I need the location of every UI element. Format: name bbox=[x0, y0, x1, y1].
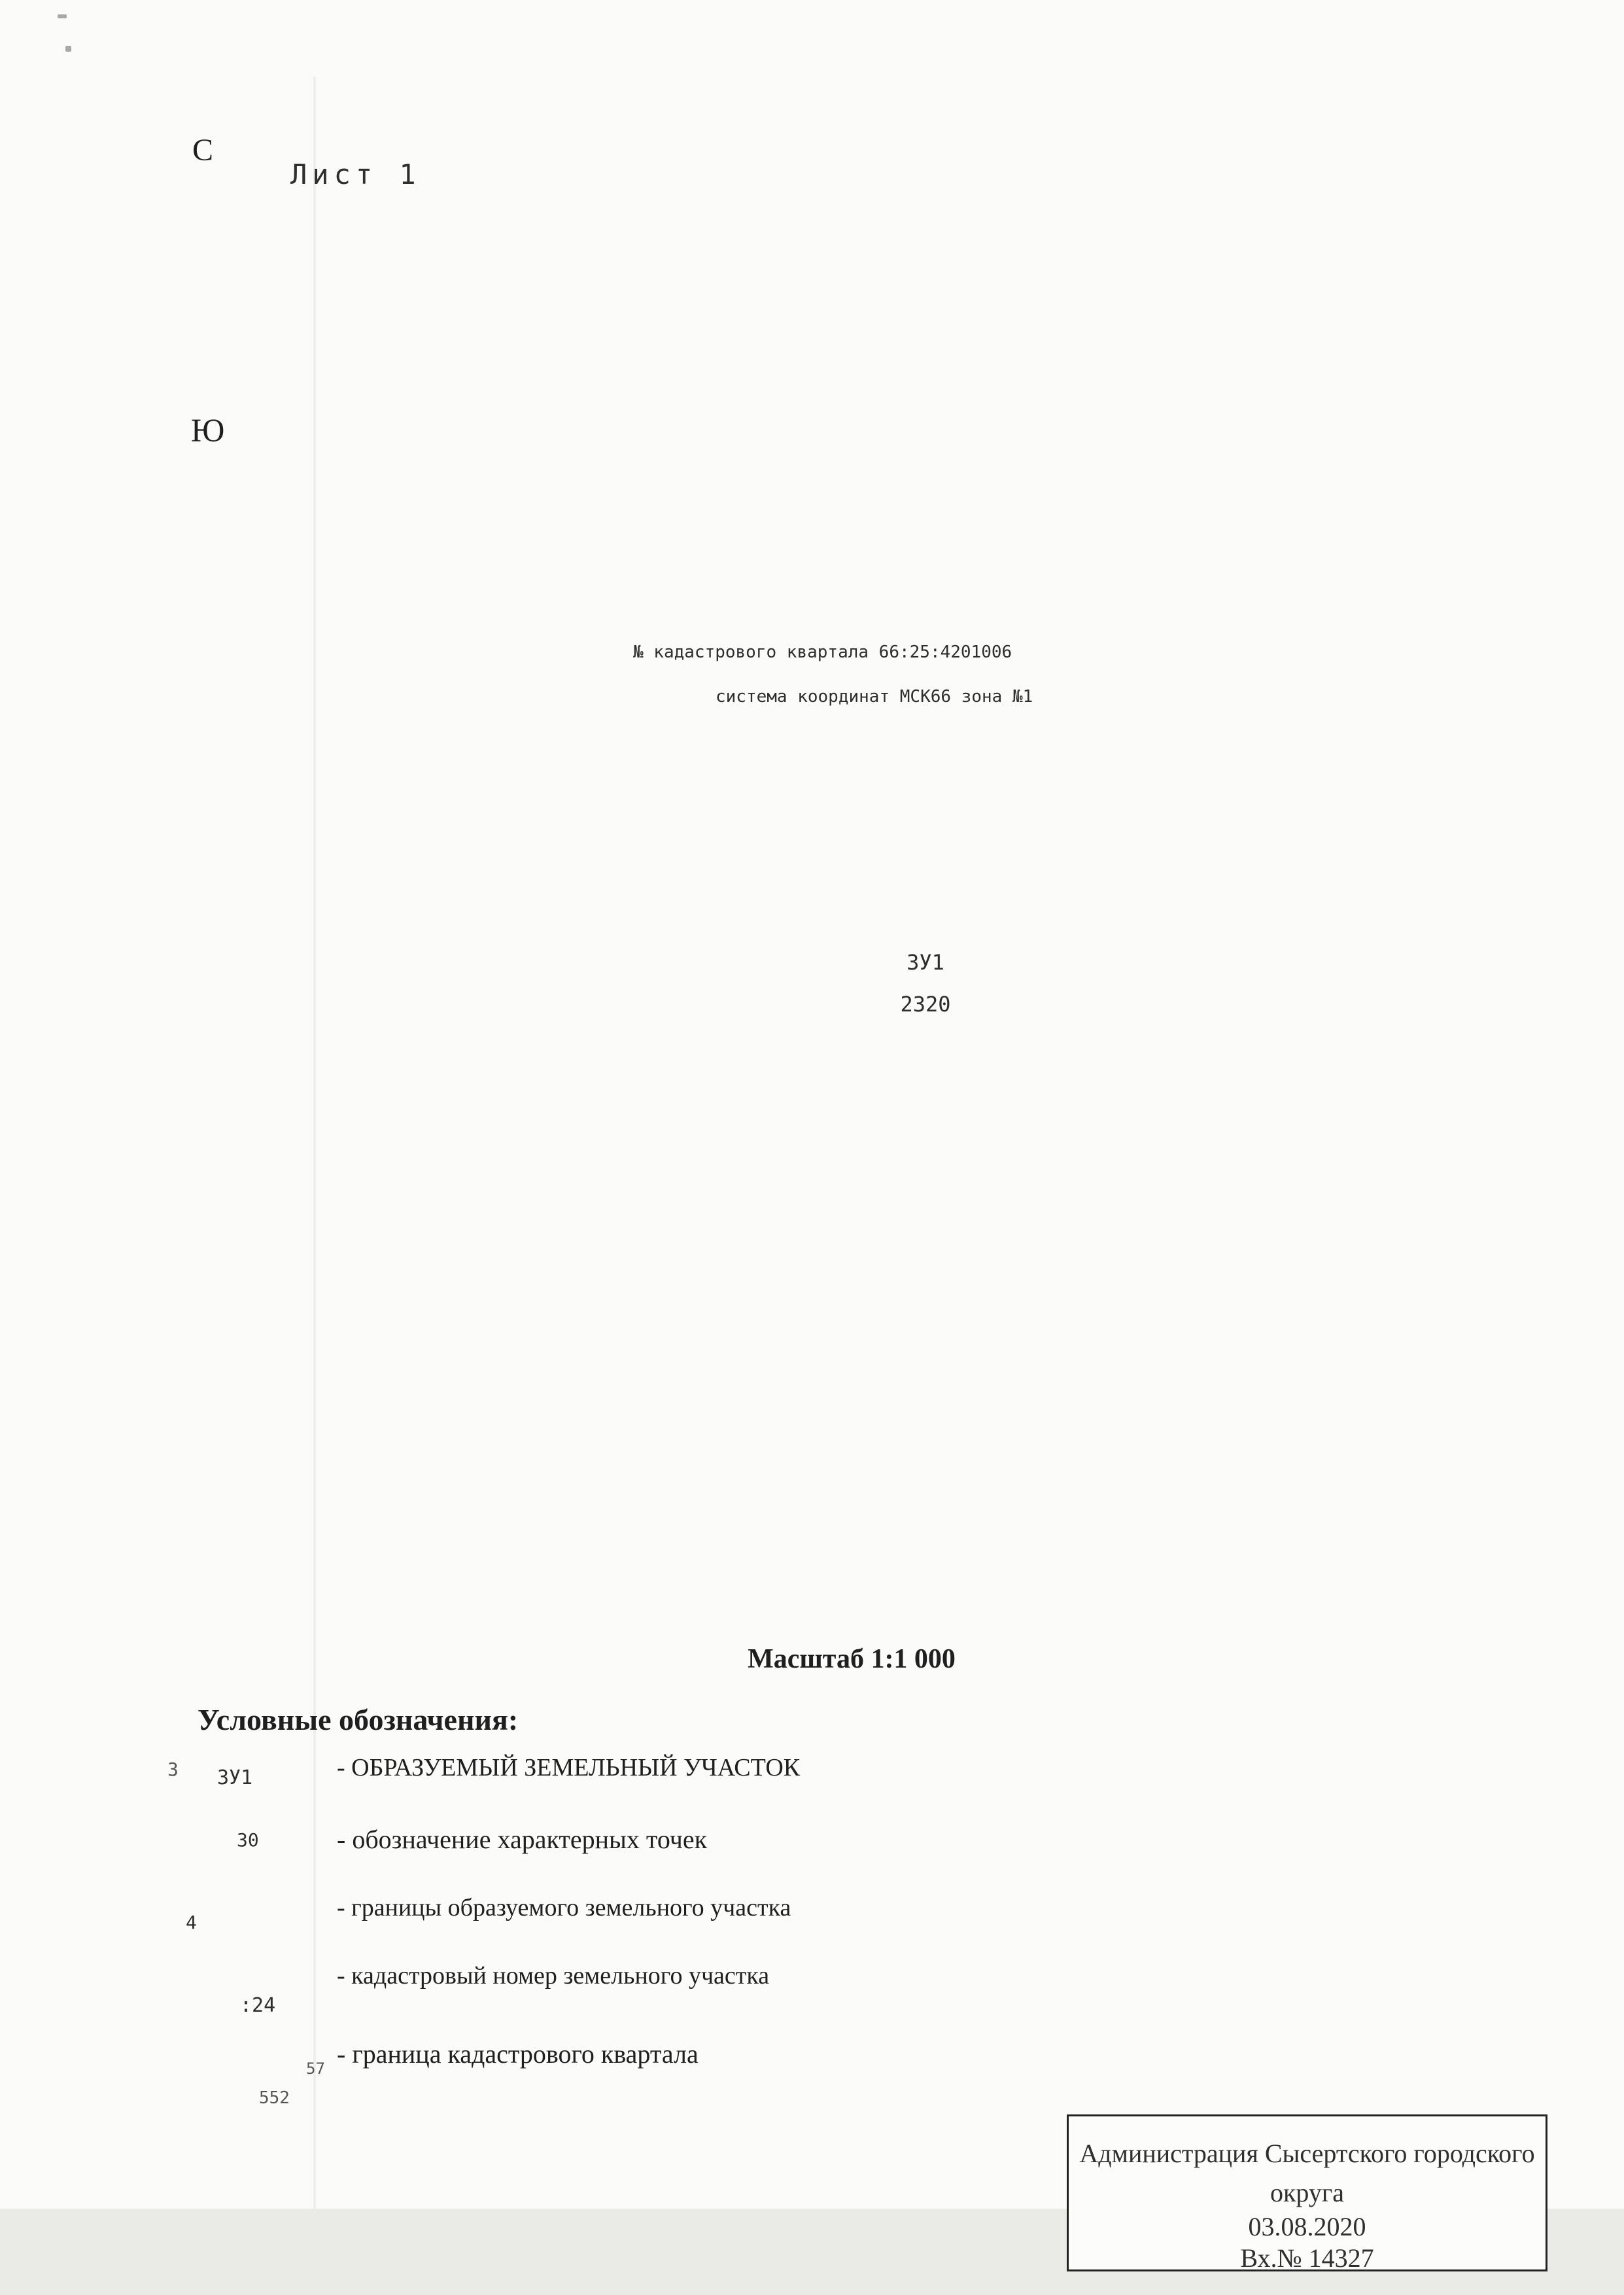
legend-parcel-symbol: ЗУ1 bbox=[217, 1766, 252, 1789]
parcel-area-value: 2320 bbox=[900, 992, 950, 1017]
sheet-title: Лист 1 bbox=[290, 158, 421, 190]
legend-item-char-points: - обозначение характерных точек bbox=[337, 1824, 707, 1855]
quarter-number-text: № кадастрового квартала 66:25:4201006 bbox=[633, 642, 1012, 662]
legend-cad-number-example: :24 bbox=[240, 1994, 275, 2017]
cadastral-map-canvas bbox=[0, 0, 1624, 2295]
legend-quarter-pt2: 552 bbox=[259, 2088, 290, 2108]
south-label: Ю bbox=[191, 411, 224, 449]
legend-item-parcel-borders: - границы образуемого земельного участка bbox=[337, 1893, 791, 1922]
legend-partial-glyph: 3 bbox=[167, 1759, 179, 1780]
legend-quarter-pt1: 57 bbox=[306, 2059, 325, 2078]
legend-title: Условные обозначения: bbox=[198, 1702, 518, 1737]
parcel-designation: ЗУ1 bbox=[907, 950, 944, 975]
scale-label: Масштаб 1:1 000 bbox=[748, 1643, 956, 1675]
legend-item-formed-parcel: - ОБРАЗУЕМЫЙ ЗЕМЕЛЬНЫЙ УЧАСТОК bbox=[337, 1753, 800, 1782]
scanned-cadastral-sheet: Администрация Сысертского городского окр… bbox=[0, 0, 1624, 2295]
coord-system-text: система координат МСК66 зона №1 bbox=[716, 687, 1033, 707]
north-label: С bbox=[192, 132, 213, 168]
legend-vertex-number: 4 bbox=[186, 1912, 197, 1933]
legend-point-number: 30 bbox=[237, 1829, 259, 1851]
legend-item-quarter-border: - граница кадастрового квартала bbox=[337, 2039, 699, 2069]
legend-item-cad-number: - кадастровый номер земельного участка bbox=[337, 1961, 769, 1990]
